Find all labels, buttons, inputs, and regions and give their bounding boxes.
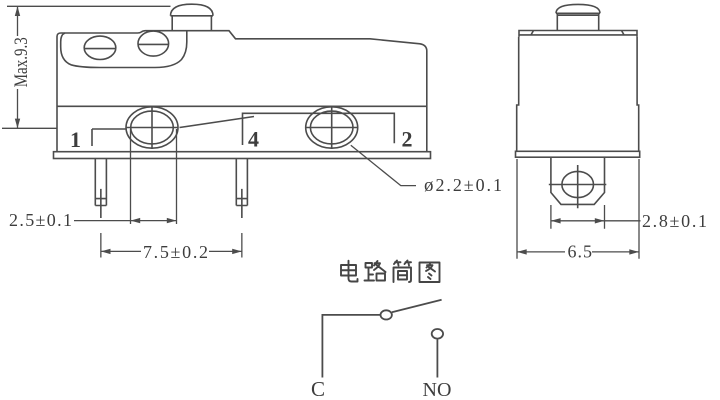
svg-text:ø2.2±0.1: ø2.2±0.1 [424, 175, 502, 196]
svg-text:6.5: 6.5 [568, 242, 593, 262]
svg-text:2: 2 [402, 127, 413, 152]
svg-text:1: 1 [70, 127, 81, 152]
svg-text:NO: NO [423, 379, 452, 400]
svg-text:7.5±0.2: 7.5±0.2 [143, 242, 208, 262]
svg-text:C: C [311, 377, 325, 400]
svg-text:4: 4 [248, 127, 259, 152]
svg-text:2.5±0.1: 2.5±0.1 [9, 210, 72, 230]
svg-text:2.8±0.1: 2.8±0.1 [642, 211, 707, 231]
svg-text:Max.9.3: Max.9.3 [11, 37, 32, 87]
